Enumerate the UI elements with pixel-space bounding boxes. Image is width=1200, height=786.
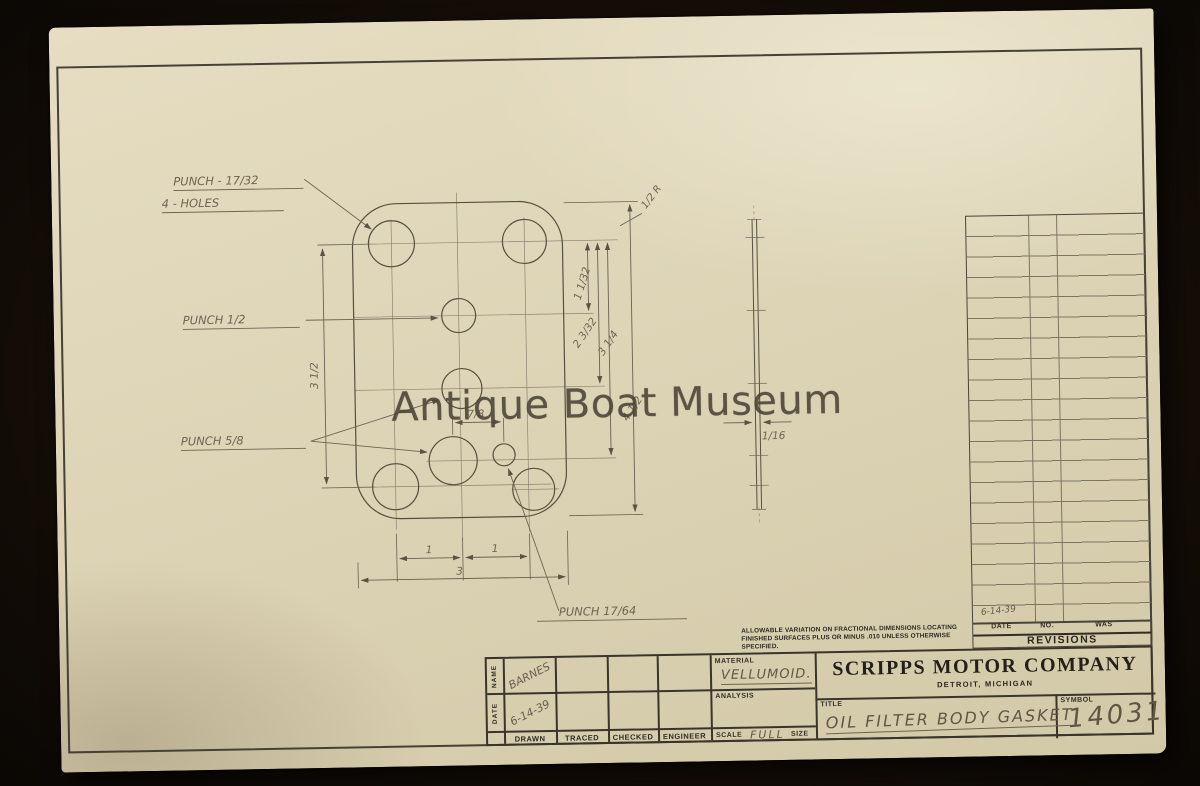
size-label: SIZE — [791, 731, 809, 738]
leader-radius — [620, 213, 642, 225]
drawn-name-cell: BARNES — [503, 658, 556, 693]
scale-label: SCALE — [716, 732, 742, 739]
dim-right-v2: 2 3/32 — [571, 315, 600, 350]
revisions-empty-rows — [966, 214, 1151, 607]
dim-line-right-overall — [630, 205, 635, 512]
dim-left-height: 3 1/2 — [308, 362, 320, 389]
punch-5-8-label: PUNCH 5/8 — [181, 433, 244, 448]
blueprint-paper: PUNCH - 17/32 4 - HOLES PUNCH 1/2 PUNCH … — [49, 8, 1167, 772]
punch-17-32-holes-label: 4 - HOLES — [162, 196, 220, 211]
title-value: OIL FILTER BODY GASKET — [826, 705, 1074, 735]
dim-right-v1: 1 1/32 — [572, 265, 593, 301]
material-value: VELLUMOID. — [721, 666, 812, 685]
centerlines — [352, 190, 623, 543]
name-row-label-cell: NAME — [487, 659, 504, 693]
traced-label: TRACED — [556, 729, 608, 747]
drawn-label: DRAWN — [504, 730, 556, 748]
tolerance-note: ALLOWABLE VARIATION ON FRACTIONAL DIMENS… — [741, 624, 979, 652]
leader-punch-17-32 — [304, 178, 371, 230]
corner-radius-label: 1/2 R — [639, 184, 664, 212]
revision-entry-date: 6-14-39 — [980, 604, 1016, 618]
revisions-table: 6-14-39 DATE NO. WAS REVISIONS — [965, 213, 1153, 649]
hole-17-64 — [493, 444, 515, 466]
dim-line-bottom-1a — [400, 558, 460, 559]
drawn-name-value: BARNES — [506, 659, 552, 691]
revisions-col-date: DATE — [991, 623, 1012, 630]
punch-17-32-label: PUNCH - 17/32 — [173, 173, 258, 188]
punch-17-64-label: PUNCH 17/64 — [559, 604, 637, 619]
title-label: TITLE — [820, 701, 842, 708]
company-header: SCRIPPS MOTOR COMPANY DETROIT, MICHIGAN — [815, 647, 1156, 691]
dim-thickness: 1/16 — [762, 430, 786, 442]
name-row-label: NAME — [491, 664, 498, 687]
leader-punch-half — [306, 318, 438, 320]
dim-line-left-height — [322, 249, 326, 484]
dim-bottom-overall: 3 — [456, 566, 463, 578]
dim-bottom-seg1: 1 — [426, 544, 433, 556]
engineer-label: ENGINEER — [658, 727, 711, 745]
drawn-date-cell: 6-14-39 — [503, 694, 556, 731]
tb-line-company-bottom — [815, 692, 1155, 699]
date-row-label-cell: DATE — [487, 695, 504, 731]
dim-bottom-seg2: 1 — [492, 543, 499, 555]
checked-label: CHECKED — [608, 728, 658, 746]
dim-right-v3: 3 1/4 — [596, 329, 621, 358]
dim-line-right-v2 — [597, 243, 599, 383]
revisions-col-was: WAS — [1095, 621, 1113, 628]
side-view — [745, 205, 770, 523]
revisions-col-no: NO. — [1040, 622, 1054, 629]
leader-punch-5-8-b — [311, 439, 427, 454]
analysis-label: ANALYSIS — [715, 692, 754, 700]
punch-half-label: PUNCH 1/2 — [183, 312, 246, 327]
watermark-text: Antique Boat Museum — [391, 377, 843, 431]
title-block: NAME DATE BARNES 6-14-39 DRAWN TRACED CH… — [485, 646, 1154, 747]
date-row-label: DATE — [492, 702, 499, 723]
drawn-date-value: 6-14-39 — [508, 697, 552, 728]
scale-value: FULL — [750, 728, 785, 742]
material-label: MATERIAL — [715, 657, 755, 665]
scan-background: PUNCH - 17/32 4 - HOLES PUNCH 1/2 PUNCH … — [0, 0, 1200, 786]
dim-line-bottom-1b — [466, 556, 527, 557]
